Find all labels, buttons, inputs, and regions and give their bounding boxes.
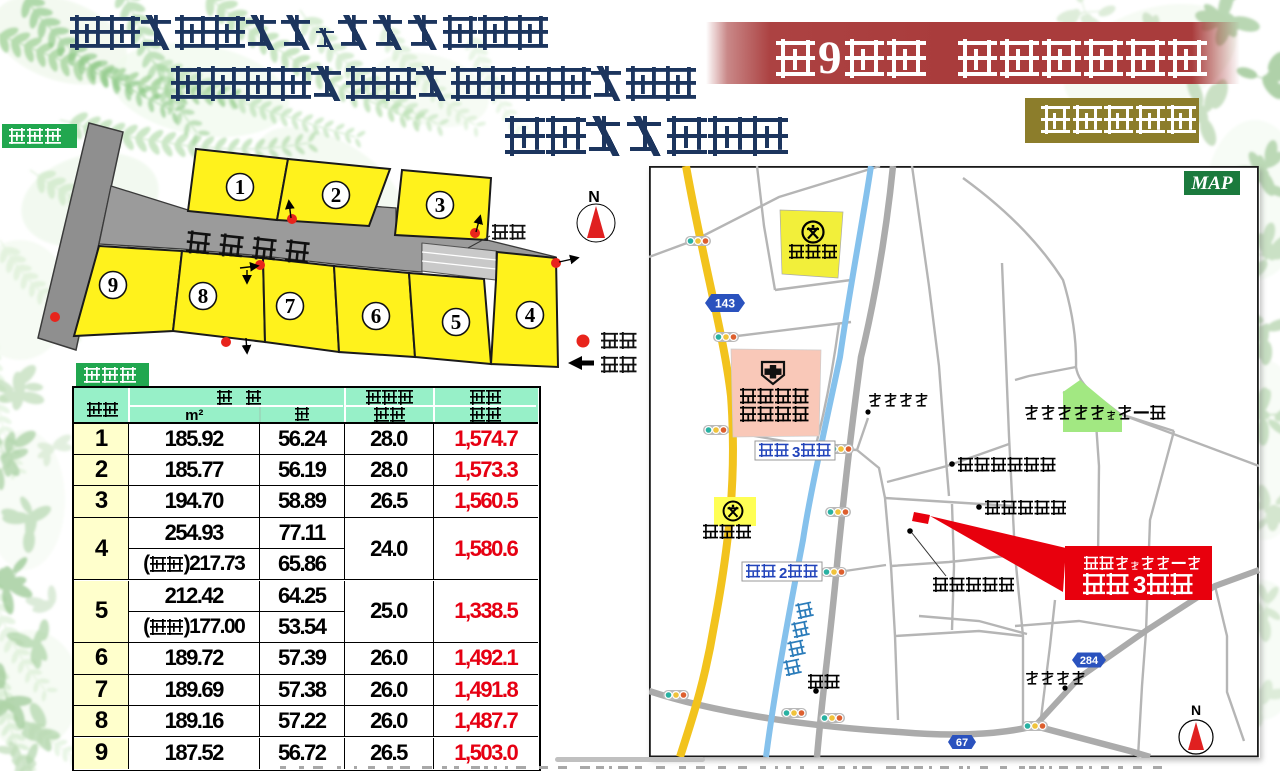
svg-text:9: 9 [108,273,119,297]
svg-text:284: 284 [1080,655,1099,667]
svg-text:8: 8 [198,284,209,308]
svg-text:3: 3 [435,193,446,217]
svg-text:N: N [1191,702,1201,718]
svg-text:3: 3 [1133,572,1146,599]
svg-text:143: 143 [715,296,735,310]
svg-text:MAP: MAP [1190,173,1233,194]
svg-text:67: 67 [956,737,968,749]
svg-text:1: 1 [235,175,246,199]
svg-text:7: 7 [285,294,296,318]
svg-text:2: 2 [779,565,787,582]
svg-text:6: 6 [371,304,382,328]
svg-text:N: N [588,189,600,206]
svg-text:2: 2 [331,183,342,207]
svg-text:4: 4 [525,303,536,327]
svg-text:5: 5 [451,310,462,334]
svg-text:3: 3 [792,444,800,461]
